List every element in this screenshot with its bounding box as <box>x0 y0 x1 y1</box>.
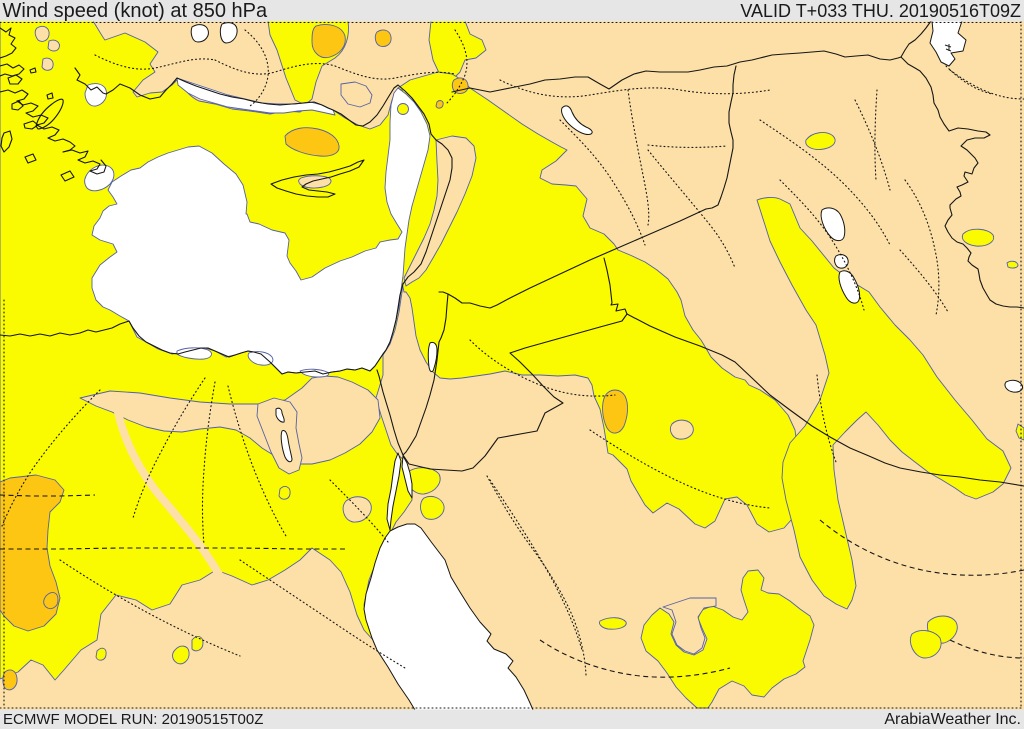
svg-text:ECMWF MODEL RUN: 20190515T00Z: ECMWF MODEL RUN: 20190515T00Z <box>3 711 263 728</box>
svg-text:VALID T+033 THU. 20190516T09Z: VALID T+033 THU. 20190516T09Z <box>740 1 1021 21</box>
svg-text:Wind speed (knot) at 850 hPa: Wind speed (knot) at 850 hPa <box>3 0 268 22</box>
svg-text:ArabiaWeather Inc.: ArabiaWeather Inc. <box>884 711 1021 728</box>
